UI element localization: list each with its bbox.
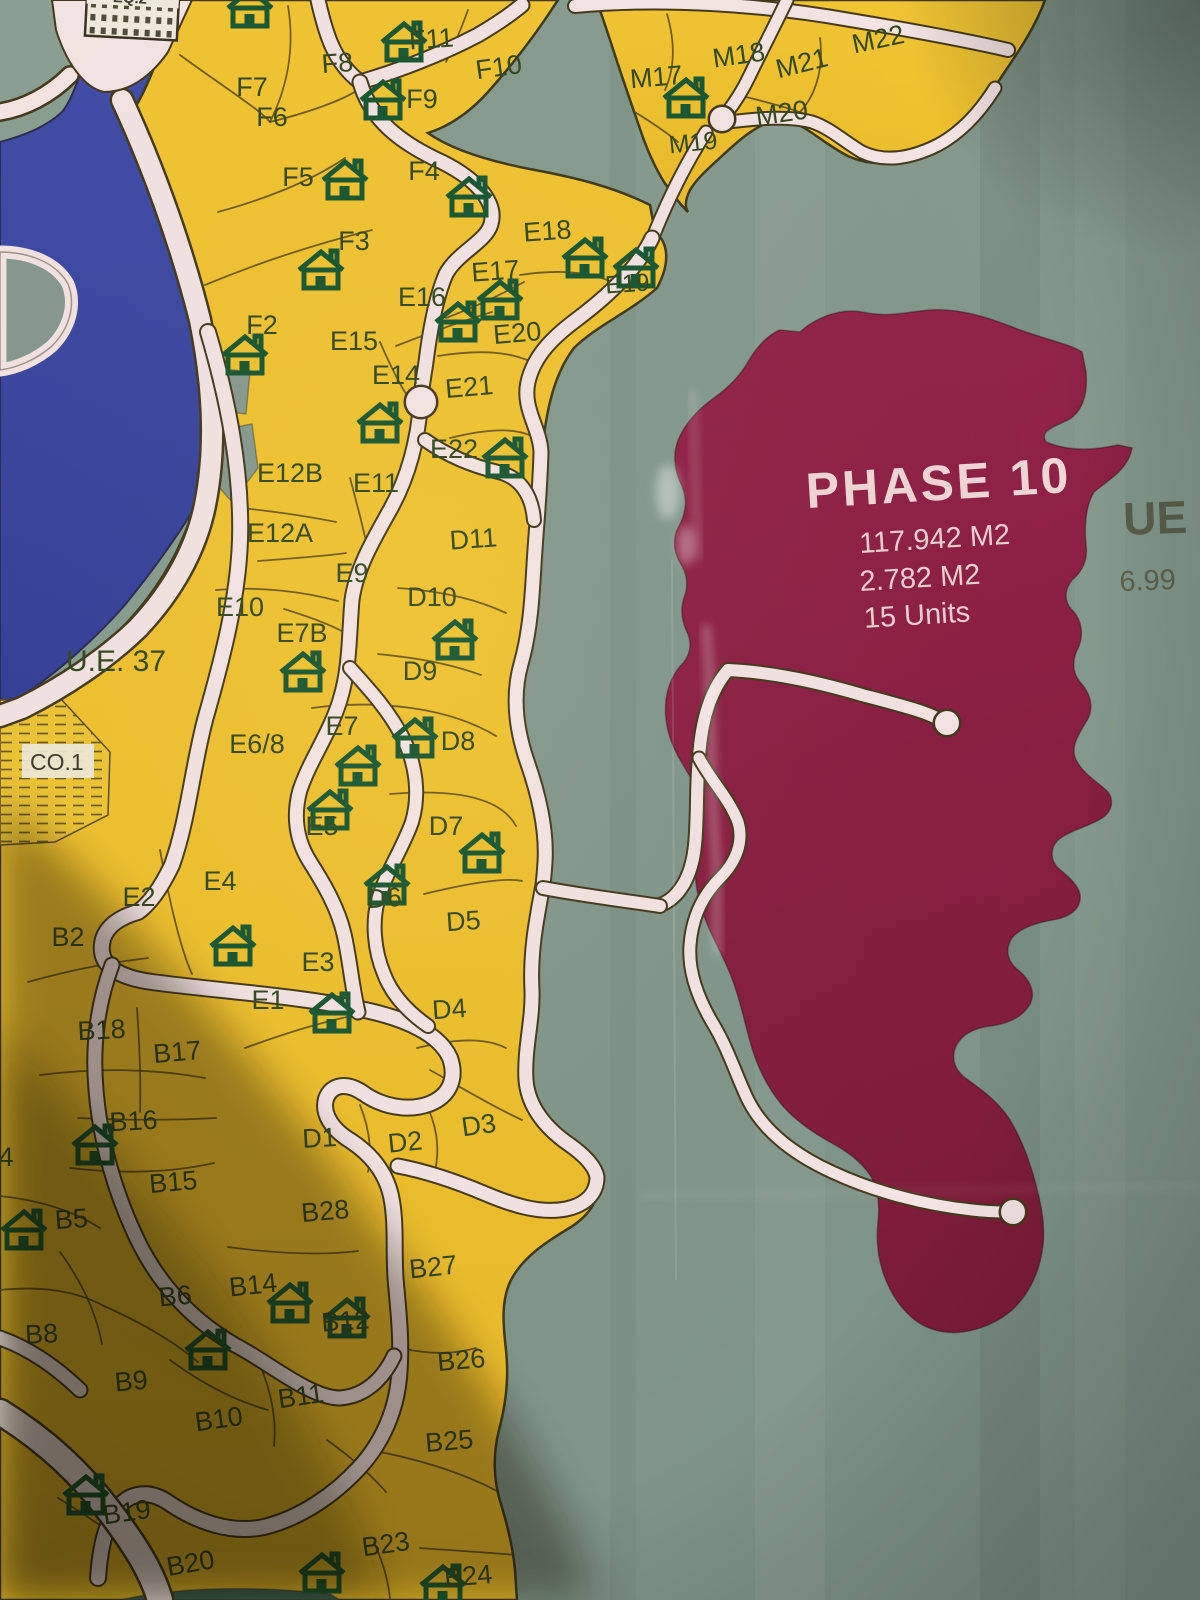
plot-map-photo: EQ.2 F7F8F11F10M17M18M19M20M21M22F6F9F5F…	[0, 0, 1200, 1600]
map-image: EQ.2 F7F8F11F10M17M18M19M20M21M22F6F9F5F…	[0, 0, 1200, 1600]
corner-shade	[600, 0, 1200, 520]
